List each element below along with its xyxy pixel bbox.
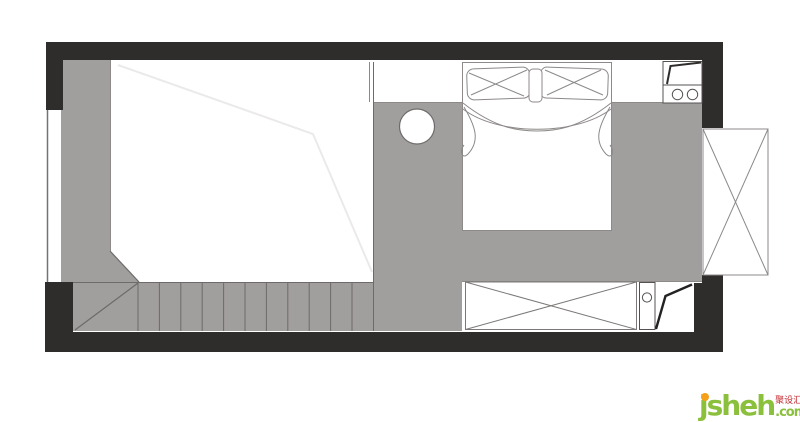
balcony-cabinet [703, 129, 768, 275]
watermark-tld-text: .com [775, 406, 800, 419]
stairs-landing-diagonal [75, 283, 138, 330]
stair-treads [138, 283, 352, 332]
watermark: jsheh 聚设汇 .com [699, 383, 797, 420]
shoe-cabinet [640, 283, 656, 330]
watermark-orange-dot-icon [701, 393, 709, 401]
shoe-cabinet-body [640, 283, 656, 330]
center-cushion [529, 69, 542, 102]
wardrobe [466, 282, 637, 330]
watermark-brand-text: jsheh [699, 389, 774, 422]
kitchen-unit [663, 62, 702, 104]
round-table [400, 109, 435, 144]
double-bed [461, 63, 612, 231]
watermark-brand: jsheh [699, 392, 774, 420]
plan-linework [0, 0, 800, 422]
loft-faint-edge [118, 65, 372, 272]
watermark-column: 聚设汇 .com [775, 397, 800, 420]
entry-door-leaf [656, 285, 692, 330]
floor-plan: jsheh 聚设汇 .com [0, 0, 800, 422]
